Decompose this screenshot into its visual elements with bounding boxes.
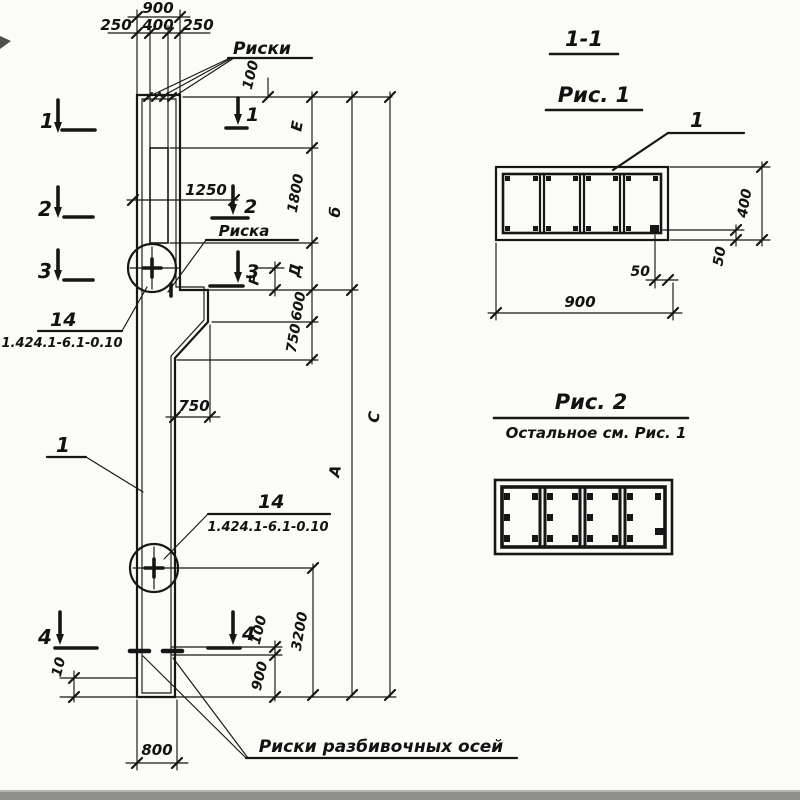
- dim-B: б: [325, 205, 345, 218]
- dim-1800: 1800: [285, 172, 308, 213]
- section-label: 2: [38, 197, 52, 221]
- embed-callout-upper: 14 1.424.1-6.1-0.10: [2, 287, 148, 351]
- dim-E: Е: [287, 119, 307, 133]
- section-mark-4-left: 4: [37, 612, 97, 649]
- dim-D: Д: [285, 262, 305, 279]
- embed-callout-lower: 14 1.424.1-6.1-0.10: [164, 491, 330, 559]
- dim-250-right: 250: [182, 16, 213, 34]
- fig1-pos-label: 1: [690, 108, 704, 132]
- dim-100-top: 100: [240, 59, 263, 91]
- edge-mark: [0, 36, 11, 49]
- embed-code-label: 1.424.1-6.1-0.10: [208, 520, 329, 535]
- fig2-view: Рис. 2 Остальное см. Рис. 1: [494, 390, 688, 554]
- dim-10: 10: [49, 655, 69, 678]
- fig1-caption: Рис. 1: [558, 83, 630, 107]
- fig1-rebar-cage: [503, 174, 661, 233]
- dim-250-left: 250: [100, 16, 131, 34]
- dim-750-vertical: 750: [284, 322, 305, 354]
- dim-800: 800: [141, 741, 172, 759]
- riski-top-label: Риски: [233, 39, 291, 59]
- fig1-dim-50-bottom: 50: [631, 264, 651, 280]
- fig1-view: 1-1 Рис. 1 1: [488, 27, 770, 320]
- dim-400-top: 400: [141, 16, 173, 34]
- fig1-corner-bar: [650, 225, 659, 233]
- top-dimension-block: 900 250 400 250 Риски 100: [100, 0, 312, 102]
- section-ref-title: 1-1: [565, 27, 603, 51]
- dim-900-bottom: 900: [249, 660, 272, 692]
- dim-750-horizontal: 750: [178, 397, 209, 415]
- section-label: 3: [38, 259, 52, 283]
- fig1-stirrups: [540, 174, 624, 233]
- section-mark-1-left: 1: [40, 100, 95, 133]
- section-label: 1: [246, 104, 259, 126]
- section-label: 2: [244, 196, 257, 218]
- pos-column-label: 1: [56, 433, 70, 457]
- dim-F: F: [246, 274, 263, 287]
- dim-1250: 1250: [185, 181, 227, 199]
- fig1-outer-contour: [496, 167, 668, 240]
- main-view: 900 250 400 250 Риски 100 1: [2, 0, 518, 770]
- column-recess: [150, 148, 168, 243]
- fig1-dim-900: 900: [564, 293, 595, 311]
- fig1-rebar-hooks: [505, 176, 659, 233]
- dim-3200: 3200: [289, 610, 312, 651]
- dim-600: 600: [289, 290, 310, 322]
- embed-code-label: 1.424.1-6.1-0.10: [2, 336, 123, 351]
- section-mark-1-column: 1: [226, 98, 259, 128]
- fig2-caption: Рис. 2: [555, 390, 627, 414]
- dim-100-bottom: 100: [248, 614, 271, 646]
- dim-A: А: [325, 464, 345, 480]
- dim-900-top: 900: [142, 0, 173, 17]
- riska-label: Риска: [219, 222, 270, 240]
- dim-C: С: [364, 410, 384, 424]
- fig1-dim-50-right: 50: [710, 245, 729, 267]
- fig1-dim-400: 400: [734, 187, 755, 220]
- lifting-holes: [128, 244, 313, 592]
- fig2-note: Остальное см. Рис. 1: [506, 424, 687, 442]
- embed-pos-label: 14: [50, 309, 76, 331]
- technical-drawing: 900 250 400 250 Риски 100 1: [0, 0, 800, 800]
- riski-axes-label: Риски разбивочных осей: [259, 737, 504, 757]
- section-marks-left: 1 2 3 4: [37, 100, 97, 649]
- embed-pos-label: 14: [258, 491, 284, 513]
- bottom-dimension-block: 100 900 10 800 Риски разбивочных осей: [49, 614, 517, 770]
- section-label: 4: [37, 625, 52, 649]
- drawing-sheet: 900 250 400 250 Риски 100 1: [0, 0, 800, 800]
- section-label: 1: [40, 109, 54, 133]
- section-mark-3-left: 3: [38, 250, 93, 283]
- section-mark-2-left: 2: [38, 187, 93, 221]
- embed-callouts: 14 1.424.1-6.1-0.10 14 1.424.1-6.1-0.10: [2, 287, 331, 559]
